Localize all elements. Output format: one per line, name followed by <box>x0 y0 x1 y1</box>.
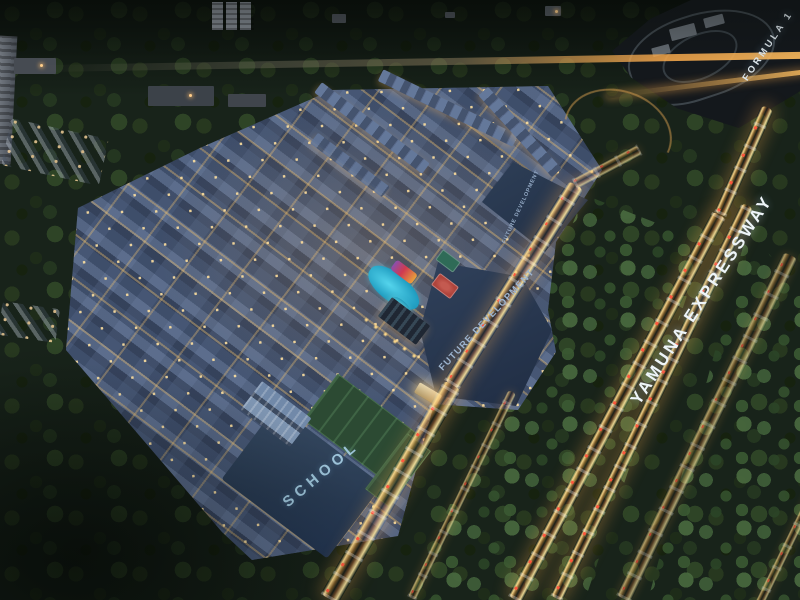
distant-building <box>332 14 346 23</box>
distant-building <box>228 94 266 107</box>
distant-building <box>545 6 561 16</box>
distant-building <box>445 12 455 18</box>
aerial-township-render: YAMUNA EXPRESSWAY FORMULA 1 FUTURE DEVEL… <box>0 0 800 600</box>
distant-building <box>148 86 214 106</box>
distant-towers <box>212 2 254 30</box>
